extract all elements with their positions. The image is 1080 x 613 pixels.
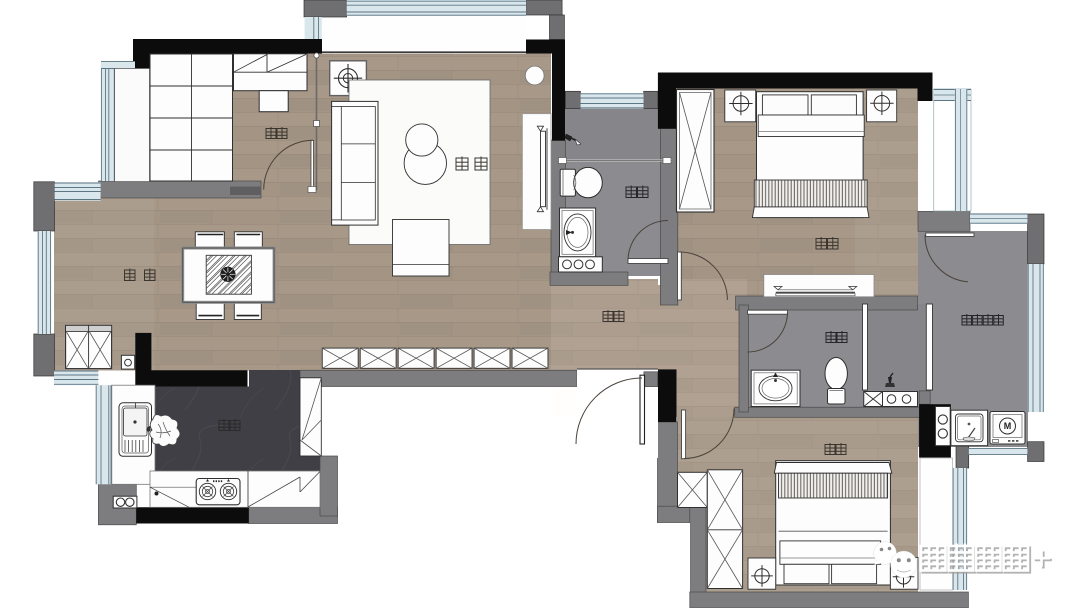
svg-text:M: M: [1004, 421, 1012, 431]
